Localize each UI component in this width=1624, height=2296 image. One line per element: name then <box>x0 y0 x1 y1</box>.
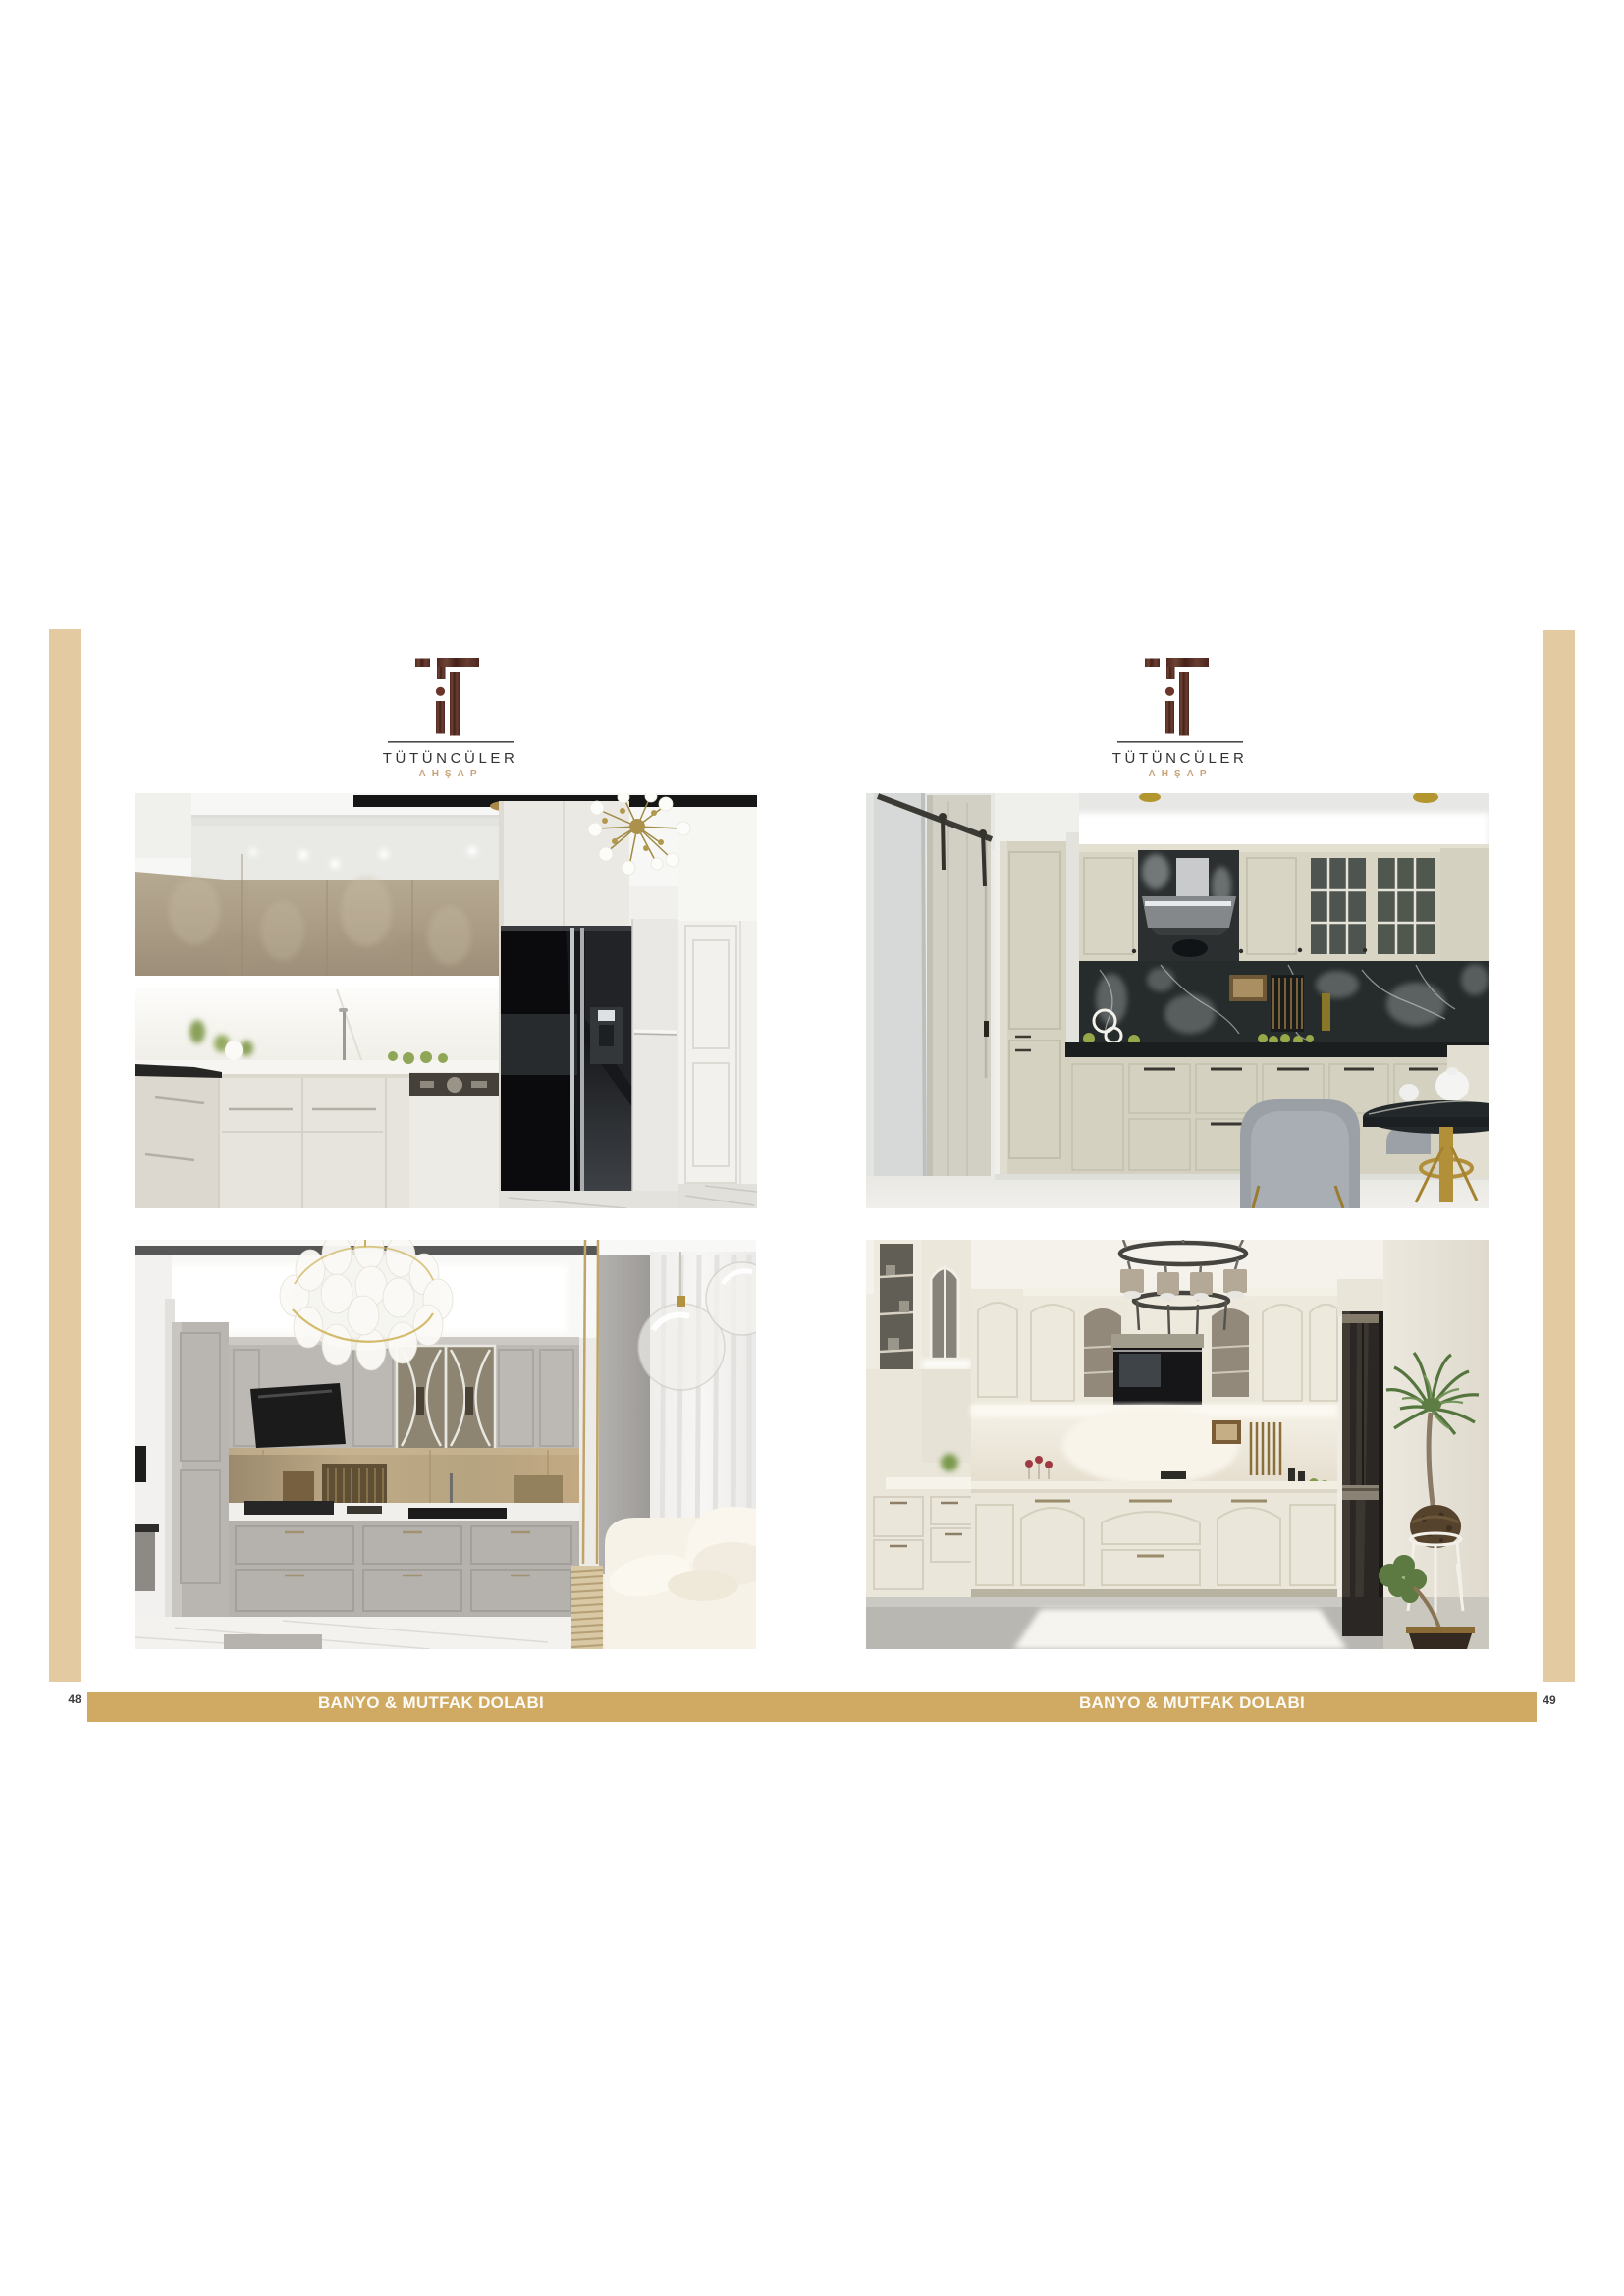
svg-text:AHŞAP: AHŞAP <box>418 769 482 779</box>
svg-text:TÜTÜNCÜLER: TÜTÜNCÜLER <box>383 749 518 767</box>
svg-text:TÜTÜNCÜLER: TÜTÜNCÜLER <box>1112 749 1248 767</box>
svg-text:AHŞAP: AHŞAP <box>1148 769 1212 779</box>
